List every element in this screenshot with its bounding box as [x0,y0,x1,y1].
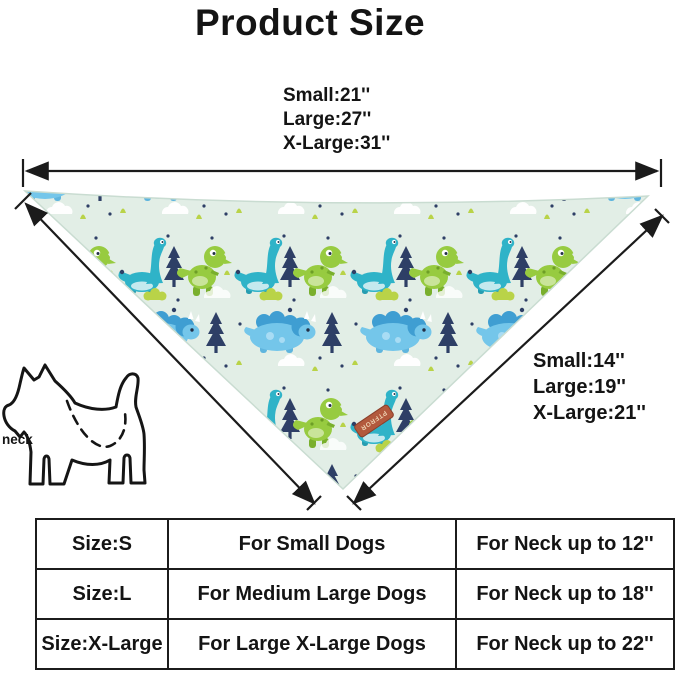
size-cell: Size:L [36,569,168,619]
measurement-line: X-Large:21'' [533,400,646,426]
top-measurements: Small:21'' Large:27'' X-Large:31'' [283,84,390,156]
measurement-line: Small:21'' [283,84,390,108]
page-title: Product Size [138,2,482,44]
neck-cell: For Neck up to 22'' [456,619,674,669]
measurement-line: X-Large:31'' [283,132,390,156]
measurement-line: Large:19'' [533,374,646,400]
top-width-arrow [23,159,661,187]
dog-outline-icon [4,365,145,484]
table-row: Size:S For Small Dogs For Neck up to 12'… [36,519,674,569]
size-cell: Size:S [36,519,168,569]
dogs-cell: For Medium Large Dogs [168,569,456,619]
neck-label: neck [2,432,33,447]
size-cell: Size:X-Large [36,619,168,669]
side-measurements: Small:14'' Large:19'' X-Large:21'' [533,348,646,426]
dogs-cell: For Large X-Large Dogs [168,619,456,669]
dogs-cell: For Small Dogs [168,519,456,569]
neck-cell: For Neck up to 12'' [456,519,674,569]
table-row: Size:X-Large For Large X-Large Dogs For … [36,619,674,669]
measurement-line: Small:14'' [533,348,646,374]
table-row: Size:L For Medium Large Dogs For Neck up… [36,569,674,619]
size-table: Size:S For Small Dogs For Neck up to 12'… [35,518,675,670]
measurement-line: Large:27'' [283,108,390,132]
neck-cell: For Neck up to 18'' [456,569,674,619]
